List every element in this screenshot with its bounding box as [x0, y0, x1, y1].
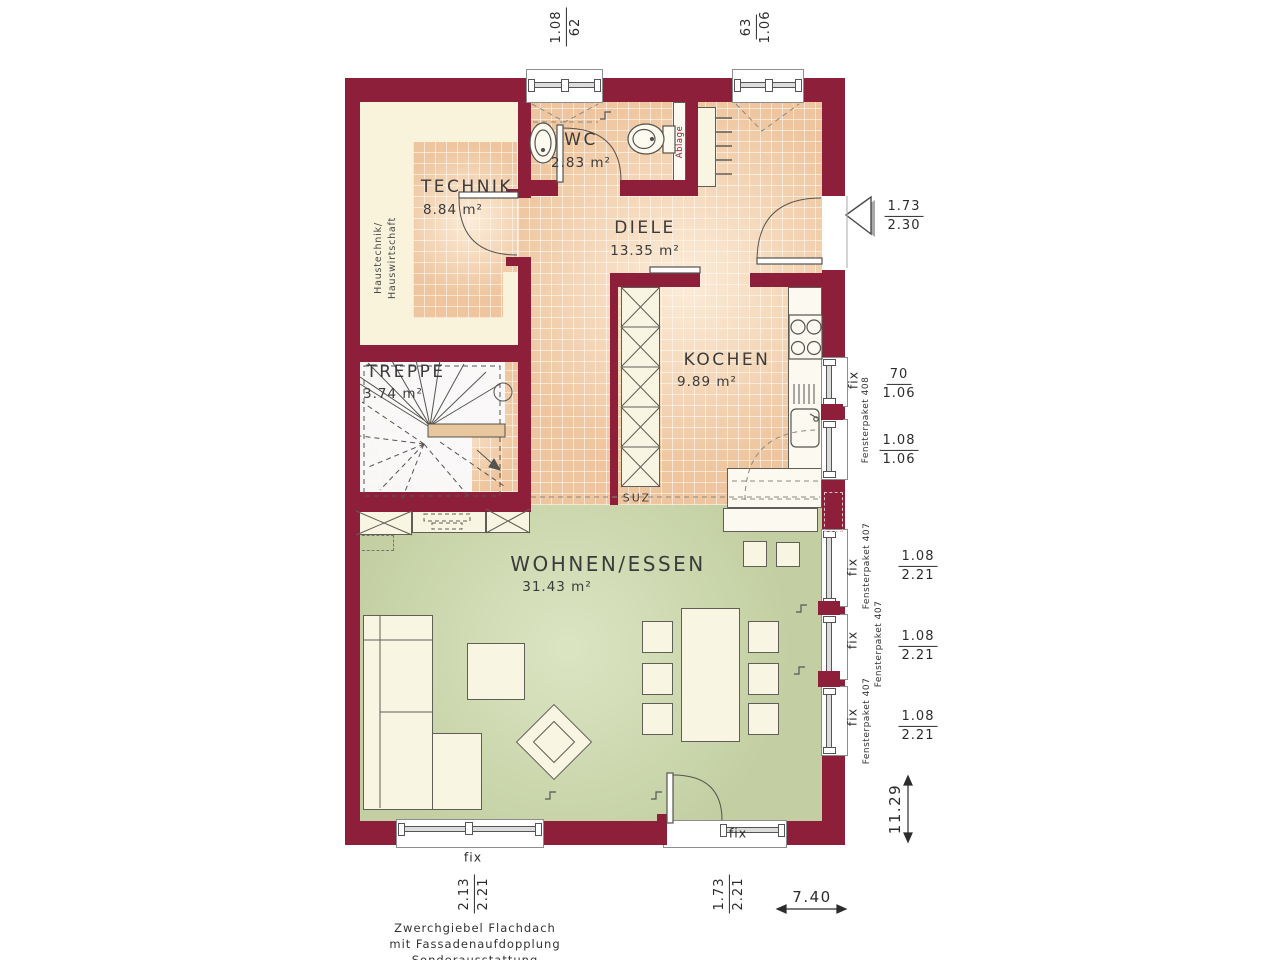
room-kochen-label: KOCHEN [684, 350, 771, 370]
entrance-arrow-shadow [850, 200, 875, 237]
sofa-chaise [432, 733, 482, 810]
haustechnik-line1: Haustechnik/ [372, 217, 386, 299]
dim-value: 62 [567, 18, 584, 37]
dim-living-window-1: 1.08 2.21 [899, 549, 938, 583]
footer-line2: mit Fassadenaufdopplung [389, 936, 560, 952]
footer-line1: Zwerchgiebel Flachdach [389, 920, 560, 936]
dim-top-window-diele: 63 1.06 [739, 11, 773, 44]
fix-label-bottom-window: fix [464, 850, 482, 865]
dim-living-window-3: 1.08 2.21 [899, 709, 938, 743]
room-treppe-area: 3.74 m² [363, 386, 423, 402]
kitchen-peninsula [723, 508, 818, 532]
dim-total-width: 7.40 [792, 888, 831, 906]
window-kitchen-upper [821, 357, 848, 407]
room-diele-label: DIELE [614, 218, 676, 238]
dim-value: 2.21 [730, 878, 747, 911]
stairs-lower-flight [360, 437, 472, 492]
floor-technik-tile [413, 142, 517, 318]
dim-value: 2.21 [902, 567, 935, 584]
entrance-door-opening [822, 196, 845, 270]
floor-plan-canvas: TECHNIK 8.84 m² WC 2.83 m² DIELE 13.35 m… [0, 0, 1280, 960]
room-wohnen-label: WOHNEN/ESSEN [510, 552, 705, 576]
room-wohnen-area: 31.43 m² [522, 579, 592, 595]
dim-value: 1.73 [712, 875, 730, 914]
window-separator [821, 404, 843, 420]
dim-value: 2.21 [902, 647, 935, 664]
entrance-arrow-icon [846, 197, 871, 234]
sofa [363, 615, 433, 810]
floor-technik-notch [503, 272, 518, 318]
room-treppe-label: TREPPE [366, 362, 445, 382]
bar-stool [743, 541, 767, 567]
dim-value: 2.13 [457, 875, 475, 914]
sideboard-dashed-outline [357, 535, 394, 551]
dim-value: 1.08 [899, 709, 938, 727]
dim-value: 1.06 [883, 451, 916, 468]
fensterpaket-407-label: Fensterpaket 407 [874, 601, 884, 688]
dim-bottom-window: 2.13 2.21 [457, 875, 491, 914]
dim-kitchen-window-upper: 70 1.06 [883, 367, 916, 401]
fix-label-living-window-1: fix [845, 558, 860, 576]
sideboard-cabinet [356, 511, 412, 535]
wall-technik-right-lower [518, 257, 531, 512]
ablage-label: Ablage [675, 126, 685, 158]
door-jamb [506, 257, 531, 266]
dim-entrance-door: 1.73 2.30 [885, 199, 924, 233]
window-separator [818, 671, 840, 687]
dim-total-depth: 11.29 [886, 784, 904, 834]
fensterpaket-408-label: Fensterpaket 408 [861, 377, 871, 464]
suz-label: SUZ [623, 492, 651, 505]
coat-rack [697, 107, 716, 187]
window-glazing [826, 361, 832, 403]
plan-footer-note: Zwerchgiebel Flachdach mit Fassadenaufdo… [389, 920, 560, 960]
wall-kitchen-top-left [618, 273, 700, 287]
dining-chair [642, 663, 673, 695]
fix-label-living-window-3: fix [845, 708, 860, 726]
glazing-cap [465, 822, 473, 835]
dining-chair [642, 703, 673, 735]
wall-technik-bottom [345, 345, 518, 362]
dining-table [681, 608, 740, 742]
dim-value: 70 [887, 367, 912, 385]
dining-chair [748, 621, 779, 653]
bar-stool [776, 542, 800, 567]
dim-value: 63 [739, 15, 757, 40]
dining-chair [748, 663, 779, 695]
dim-value: 2.30 [888, 217, 921, 234]
door-jamb [657, 814, 667, 845]
wall-treppe-bottom [345, 492, 531, 512]
terrace-door-window [663, 820, 787, 848]
fix-label-kitchen-window: fix [846, 371, 861, 389]
dim-value: 2.21 [902, 727, 935, 744]
dim-value: 2.21 [475, 878, 492, 911]
window-glazing [826, 618, 832, 676]
window-glazing [826, 423, 832, 476]
wall-dashed-marking [824, 492, 843, 532]
glazing-cap [561, 79, 569, 92]
kitchen-counter-bottom [727, 468, 822, 508]
room-kochen-area: 9.89 m² [677, 374, 737, 390]
dim-top-window-wc: 1.08 62 [549, 8, 583, 47]
kitchen-tall-cabinets [621, 287, 660, 487]
fix-label-terrace-window: fix [729, 826, 747, 841]
room-diele-area: 13.35 m² [610, 243, 680, 259]
wall-kitchen-top-right [750, 273, 822, 287]
room-technik-area: 8.84 m² [423, 202, 483, 218]
haustechnik-side-label: Haustechnik/Hauswirtschaft [372, 217, 401, 299]
dim-value: 1.08 [899, 549, 938, 567]
dim-value: 1.08 [899, 629, 938, 647]
dim-value: 1.08 [880, 433, 919, 451]
window-glazing [826, 533, 832, 603]
wall-kitchen-left [610, 273, 618, 505]
dim-value: 1.06 [757, 11, 774, 44]
fix-label-living-window-2: fix [845, 631, 860, 649]
room-wc-area: 2.83 m² [551, 155, 611, 171]
dim-kitchen-window-lower: 1.08 1.06 [880, 433, 919, 467]
fensterpaket-407-label: Fensterpaket 407 [862, 678, 872, 765]
dim-value: 1.06 [883, 385, 916, 402]
window-glazing [826, 690, 832, 752]
sideboard-cabinet [412, 509, 486, 533]
dim-value: 1.08 [549, 8, 567, 47]
dim-terrace-door: 1.73 2.21 [712, 875, 746, 914]
sideboard-cabinet [486, 509, 530, 533]
window-separator [818, 601, 840, 615]
room-technik-label: TECHNIK [421, 177, 513, 197]
glazing-cap [765, 79, 773, 92]
wall-left [345, 78, 360, 845]
coffee-table [467, 643, 525, 700]
footer-line3: Sonderausstattung [389, 952, 560, 960]
window-kitchen-lower [821, 419, 848, 480]
wall-wc-right [686, 100, 698, 190]
dim-living-window-2: 1.08 2.21 [899, 629, 938, 663]
dining-chair [642, 621, 673, 653]
room-wc-label: WC [564, 130, 598, 150]
dining-chair [748, 703, 779, 735]
haustechnik-line2: Hauswirtschaft [386, 217, 400, 299]
fensterpaket-407-label: Fensterpaket 407 [862, 523, 872, 610]
dim-value: 1.73 [885, 199, 924, 217]
